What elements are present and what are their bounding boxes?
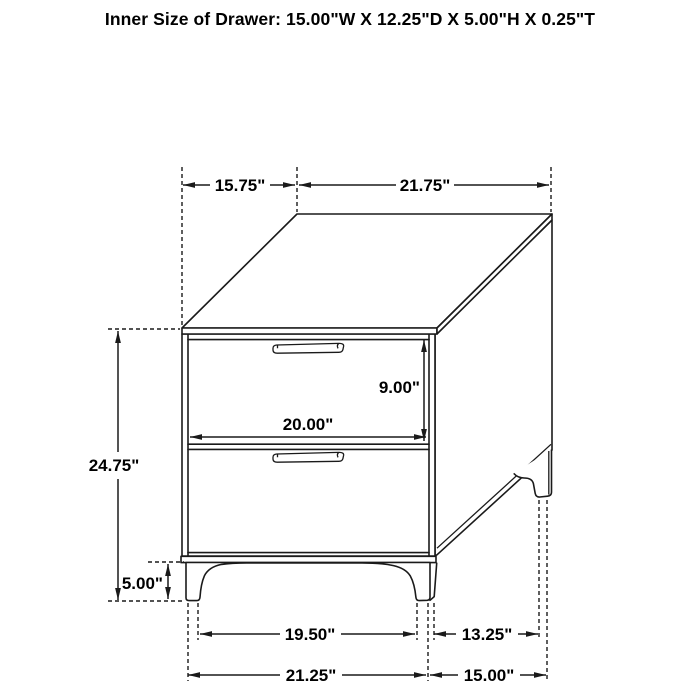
dimension-top-width: 21.75": [299, 176, 549, 195]
dimension-leg-height: 5.00": [122, 564, 168, 599]
dim-drawer-width-label: 20.00": [283, 415, 334, 434]
dim-front-legs-inner-label: 19.50": [285, 625, 336, 644]
nightstand: [181, 214, 552, 601]
dim-drawer-height-label: 9.00": [379, 378, 420, 397]
front-right-leg-side: [430, 563, 437, 600]
dim-overall-height-label: 24.75": [89, 456, 140, 475]
furniture-dimension-diagram: Inner Size of Drawer: 15.00"W X 12.25"D …: [0, 0, 700, 700]
dimension-front-legs-outer: 21.25": [188, 666, 426, 685]
dimension-top-depth: 15.75": [183, 176, 295, 195]
dimension-side-legs-inner: 13.25": [434, 625, 538, 644]
dimension-overall-height: 24.75": [89, 331, 140, 600]
top-slab-front-edge: [182, 328, 437, 334]
dim-leg-height-label: 5.00": [122, 574, 163, 593]
nightstand-drawing-canvas: 15.75" 21.75" 9.00" 20.00" 24.75" 5.00": [0, 0, 700, 700]
dim-front-legs-outer-label: 21.25": [286, 666, 337, 685]
dimension-side-legs-outer: 15.00": [430, 666, 546, 685]
dim-top-depth-label: 15.75": [215, 176, 266, 195]
dim-side-legs-outer-label: 15.00": [464, 666, 515, 685]
bottom-board: [181, 556, 436, 562]
dimension-front-legs-inner: 19.50": [200, 625, 415, 644]
front-legs-apron: [186, 563, 430, 601]
dim-top-width-label: 21.75": [400, 176, 451, 195]
dim-side-legs-inner-label: 13.25": [462, 625, 513, 644]
